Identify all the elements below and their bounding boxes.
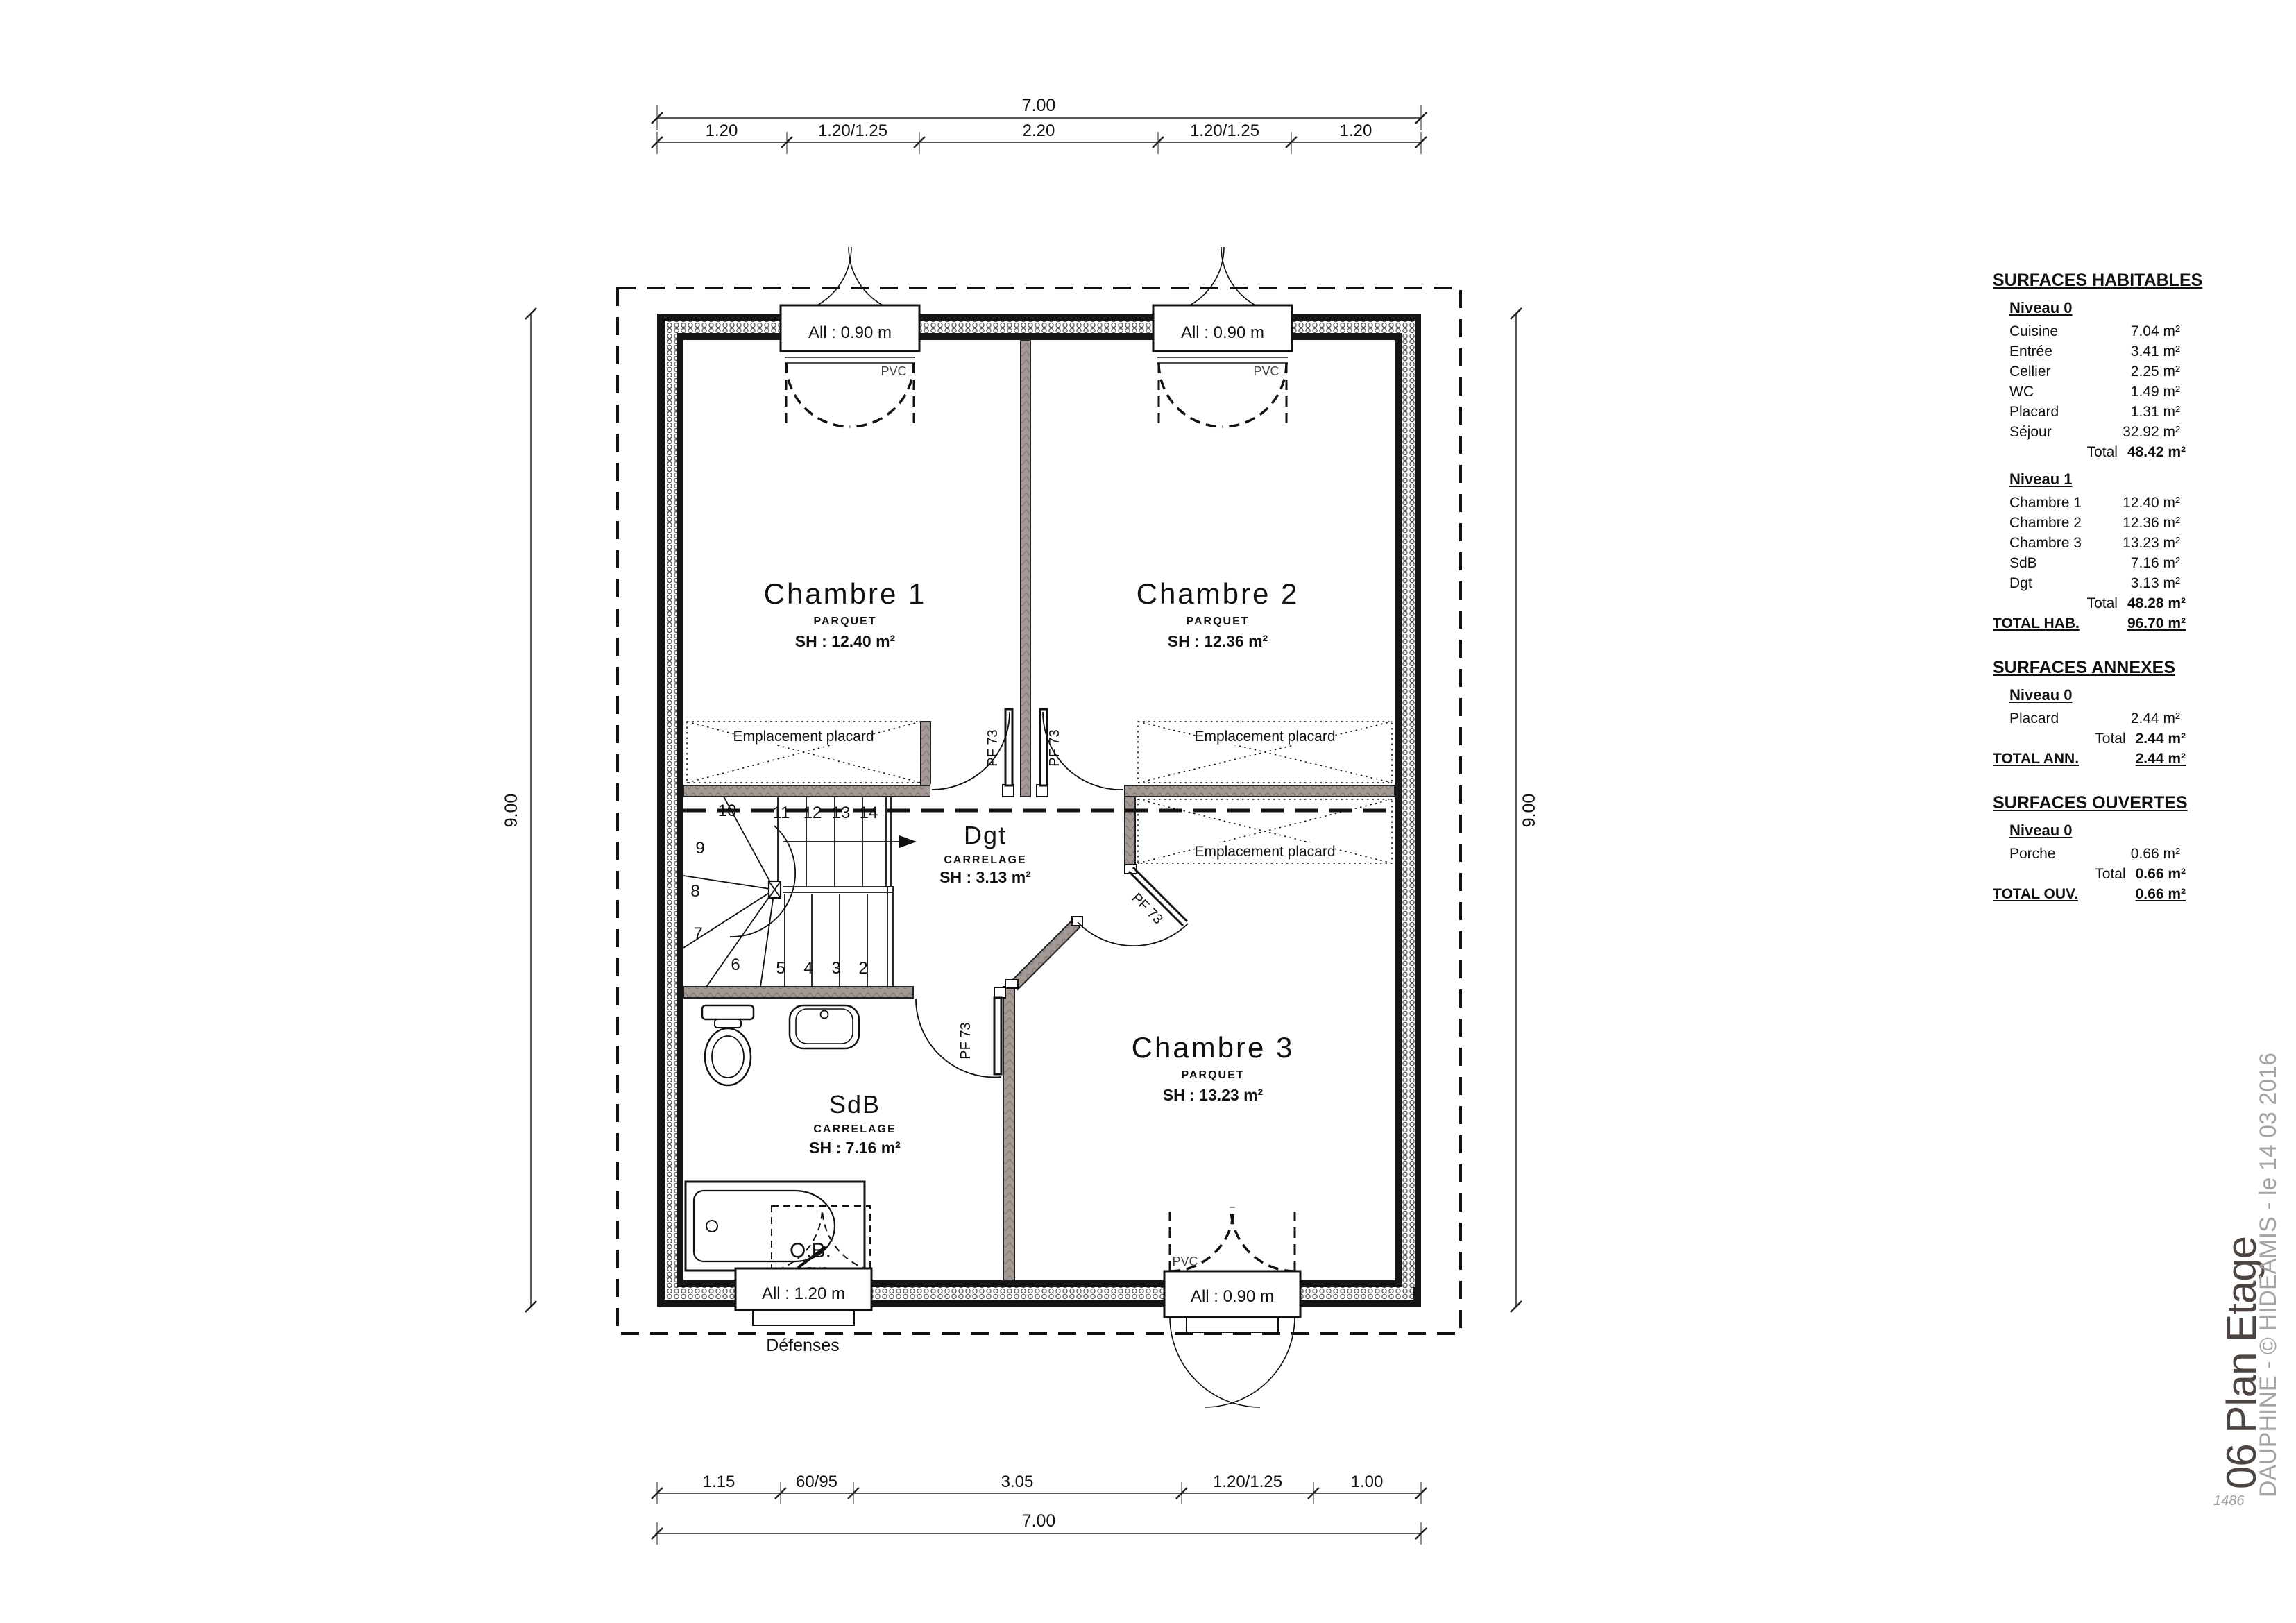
total-habitables-row: TOTAL HAB.96.70 m² [1993,613,2186,634]
row-value: 2.25 m² [2131,362,2180,382]
row-value: 12.40 m² [2123,493,2180,513]
table-row: Entrée3.41 m² [2009,341,2180,362]
row-value: 13.23 m² [2123,533,2180,553]
grand-value: 0.66 m² [2136,884,2186,905]
room-floor: CARRELAGE [944,854,1026,866]
window-material-label: PVC [1172,1255,1198,1268]
niveau-total-row: Total0.66 m² [1993,864,2186,884]
room-floor: PARQUET [1186,615,1249,627]
stair-number: 4 [803,959,813,978]
bathroom-fixtures [686,1005,865,1271]
stair-number: 2 [858,959,867,978]
toilet [702,1005,754,1085]
table-row: Cuisine7.04 m² [2009,321,2180,341]
table-row: Chambre 212.36 m² [2009,513,2180,533]
row-label: Placard [2009,708,2059,729]
stair-number: 5 [776,959,785,978]
stair-number: 9 [695,839,704,858]
room-label-dgt: Dgt CARRELAGE SH : 3.13 m² [939,821,1031,886]
grand-label: TOTAL OUV. [1993,884,2078,905]
room-area: SH : 13.23 m² [1163,1086,1264,1104]
row-value: 12.36 m² [2123,513,2180,533]
row-label: WC [2009,382,2034,402]
stair-number: 6 [731,955,740,974]
room-floor: CARRELAGE [813,1123,896,1135]
dim-top-total: 7.00 [1022,96,1056,115]
row-value: 2.44 m² [2131,708,2180,729]
niveau-title: Niveau 0 [2009,822,2201,840]
wall-chambre1-chambre2 [1021,340,1030,797]
surfaces-annexes-title: SURFACES ANNEXES [1993,658,2201,678]
row-value: 7.16 m² [2131,553,2180,573]
dim-top-segment: 2.20 [1023,121,1055,140]
row-label: Entrée [2009,341,2052,362]
niveau-title: Niveau 1 [2009,470,2201,488]
stair-number: 7 [693,924,702,943]
niveau-title: Niveau 0 [2009,686,2201,704]
room-area: SH : 12.40 m² [795,632,896,650]
total-label: Total [2087,593,2118,613]
row-value: 3.41 m² [2131,341,2180,362]
table-row: Cellier2.25 m² [2009,362,2180,382]
total-value: 0.66 m² [2136,864,2186,884]
total-value: 48.42 m² [2127,442,2186,462]
surfaces-habitables-title: SURFACES HABITABLES [1993,271,2201,291]
window-label: All : 0.90 m [1191,1287,1274,1306]
window-label: All : 0.90 m [808,323,892,342]
window-material-label: PVC [881,364,906,378]
table-row: Séjour32.92 m² [2009,422,2180,442]
door-leaf-sdb [994,998,1001,1074]
table-row: SdB7.16 m² [2009,553,2180,573]
grand-label: TOTAL HAB. [1993,613,2080,634]
row-value: 0.66 m² [2131,844,2180,864]
room-area: SH : 3.13 m² [939,868,1031,886]
dim-top-segment: 1.20 [1340,121,1372,140]
row-label: Chambre 2 [2009,513,2082,533]
room-area: SH : 12.36 m² [1168,632,1268,650]
total-value: 48.28 m² [2127,593,2186,613]
window-top-left: All : 0.90 m PVC [781,247,919,427]
dim-bottom-segment: 3.05 [1001,1472,1034,1491]
stair-number: 13 [832,804,851,822]
grand-value: 96.70 m² [2127,613,2186,634]
bathtub [686,1182,865,1271]
stair-number: 8 [690,882,699,901]
table-row: Dgt3.13 m² [2009,573,2180,593]
row-value: 3.13 m² [2131,573,2180,593]
room-name: Dgt [964,821,1007,849]
door-size-label: PF 73 [958,1022,973,1059]
table-row: Placard2.44 m² [2009,708,2180,729]
dim-bottom-total: 7.00 [1022,1511,1056,1531]
table-row: Placard1.31 m² [2009,402,2180,422]
total-annexes-row: TOTAL ANN.2.44 m² [1993,749,2186,770]
dim-top-segment: 1.20/1.25 [1190,121,1259,140]
dim-bottom-segment: 1.15 [703,1472,735,1491]
grand-label: TOTAL ANN. [1993,749,2079,770]
window-ob-label: O.B. [790,1239,831,1262]
niveau-total-row: Total2.44 m² [1993,729,2186,749]
row-label: SdB [2009,553,2037,573]
defenses-label: Défenses [766,1336,840,1355]
window-material-label: PVC [1253,364,1279,378]
room-labels: Chambre 1 PARQUET SH : 12.40 m² Chambre … [764,577,1300,1157]
dim-top-segment: 1.20/1.25 [818,121,887,140]
row-value: 32.92 m² [2123,422,2180,442]
window-top-right: All : 0.90 m PVC [1153,247,1292,427]
dim-right: 9.00 [1520,794,1539,828]
row-label: Cellier [2009,362,2051,382]
row-label: Chambre 3 [2009,533,2082,553]
drawing-reference-number: 1486 [2213,1493,2245,1509]
window-label: All : 1.20 m [762,1284,845,1303]
row-label: Cuisine [2009,321,2058,341]
door-size-label: PF 73 [985,729,1001,766]
door-arc-chambre3 [1078,922,1188,946]
door-labels: PF 73 PF 73 PF 73 PF 73 [958,729,1166,1059]
wall-placard-chambre1 [683,785,930,797]
total-ouvertes-row: TOTAL OUV.0.66 m² [1993,884,2186,905]
window-label: All : 0.90 m [1181,323,1264,342]
stair-arrow-head [899,835,917,848]
table-row: Chambre 313.23 m² [2009,533,2180,553]
grand-value: 2.44 m² [2136,749,2186,770]
row-label: Dgt [2009,573,2032,593]
room-label-sdb: SdB CARRELAGE SH : 7.16 m² [809,1090,901,1157]
total-label: Total [2087,442,2118,462]
stair-number: 11 [773,804,790,822]
door-size-label: PF 73 [1129,890,1166,927]
niveau-total-row: Total48.28 m² [1993,593,2186,613]
surfaces-panel: SURFACES HABITABLES Niveau 0 Cuisine7.04… [1993,271,2201,905]
wall-stairs-sdb [683,987,913,998]
room-label-chambre2: Chambre 2 PARQUET SH : 12.36 m² [1137,577,1300,650]
placard-label: Emplacement placard [1194,844,1335,860]
row-label: Séjour [2009,422,2052,442]
total-value: 2.44 m² [2136,729,2186,749]
sink [790,1005,859,1048]
dim-top-segment: 1.20 [706,121,738,140]
table-row: WC1.49 m² [2009,382,2180,402]
wall-sdb-chambre3 [1003,987,1014,1280]
stair-number: 3 [831,959,840,978]
stair-number: 10 [718,801,737,820]
table-row: Chambre 112.40 m² [2009,493,2180,513]
wall-dgt-chambre3 [1125,797,1135,866]
total-label: Total [2095,729,2125,749]
placard-label: Emplacement placard [1194,729,1335,745]
dim-bottom-segment: 1.20/1.25 [1213,1472,1282,1491]
room-name: Chambre 3 [1132,1031,1295,1064]
row-label: Porche [2009,844,2056,864]
row-value: 1.49 m² [2131,382,2180,402]
drawing-subtitle: DAUPHINE - © HIDEAMIS - le 14 03 2016 [2255,1053,2282,1497]
table-row: Porche0.66 m² [2009,844,2180,864]
staircase [683,797,917,987]
room-label-chambre3: Chambre 3 PARQUET SH : 13.23 m² [1132,1031,1295,1104]
room-floor: PARQUET [813,615,876,627]
room-floor: PARQUET [1181,1069,1244,1081]
room-name: Chambre 2 [1137,577,1300,610]
niveau-total-row: Total48.42 m² [1993,442,2186,462]
stair-number: 14 [860,804,878,822]
room-label-chambre1: Chambre 1 PARQUET SH : 12.40 m² [764,577,927,650]
wall-placard-end-chambre1 [921,722,930,785]
wall-placard-chambre2 [1125,785,1395,797]
dim-bottom-segment: 1.00 [1351,1472,1384,1491]
row-label: Placard [2009,402,2059,422]
room-name: Chambre 1 [764,577,927,610]
total-label: Total [2095,864,2125,884]
stair-number: 12 [803,804,822,822]
row-label: Chambre 1 [2009,493,2082,513]
dim-bottom-segment: 60/95 [796,1472,837,1491]
niveau-title: Niveau 0 [2009,299,2201,317]
wall-diagonal-chambre3 [1010,920,1080,989]
room-name: SdB [829,1090,881,1119]
surfaces-ouvertes-title: SURFACES OUVERTES [1993,793,2201,813]
row-value: 7.04 m² [2131,321,2180,341]
window-bottom-right: PVC All : 0.90 m [1164,1207,1300,1407]
placard-label: Emplacement placard [733,729,874,745]
door-size-label: PF 73 [1047,729,1062,766]
room-area: SH : 7.16 m² [809,1139,901,1157]
floor-plan-drawing: Emplacement placard Emplacement placard … [0,0,2296,1623]
dim-left: 9.00 [502,794,521,828]
row-value: 1.31 m² [2131,402,2180,422]
